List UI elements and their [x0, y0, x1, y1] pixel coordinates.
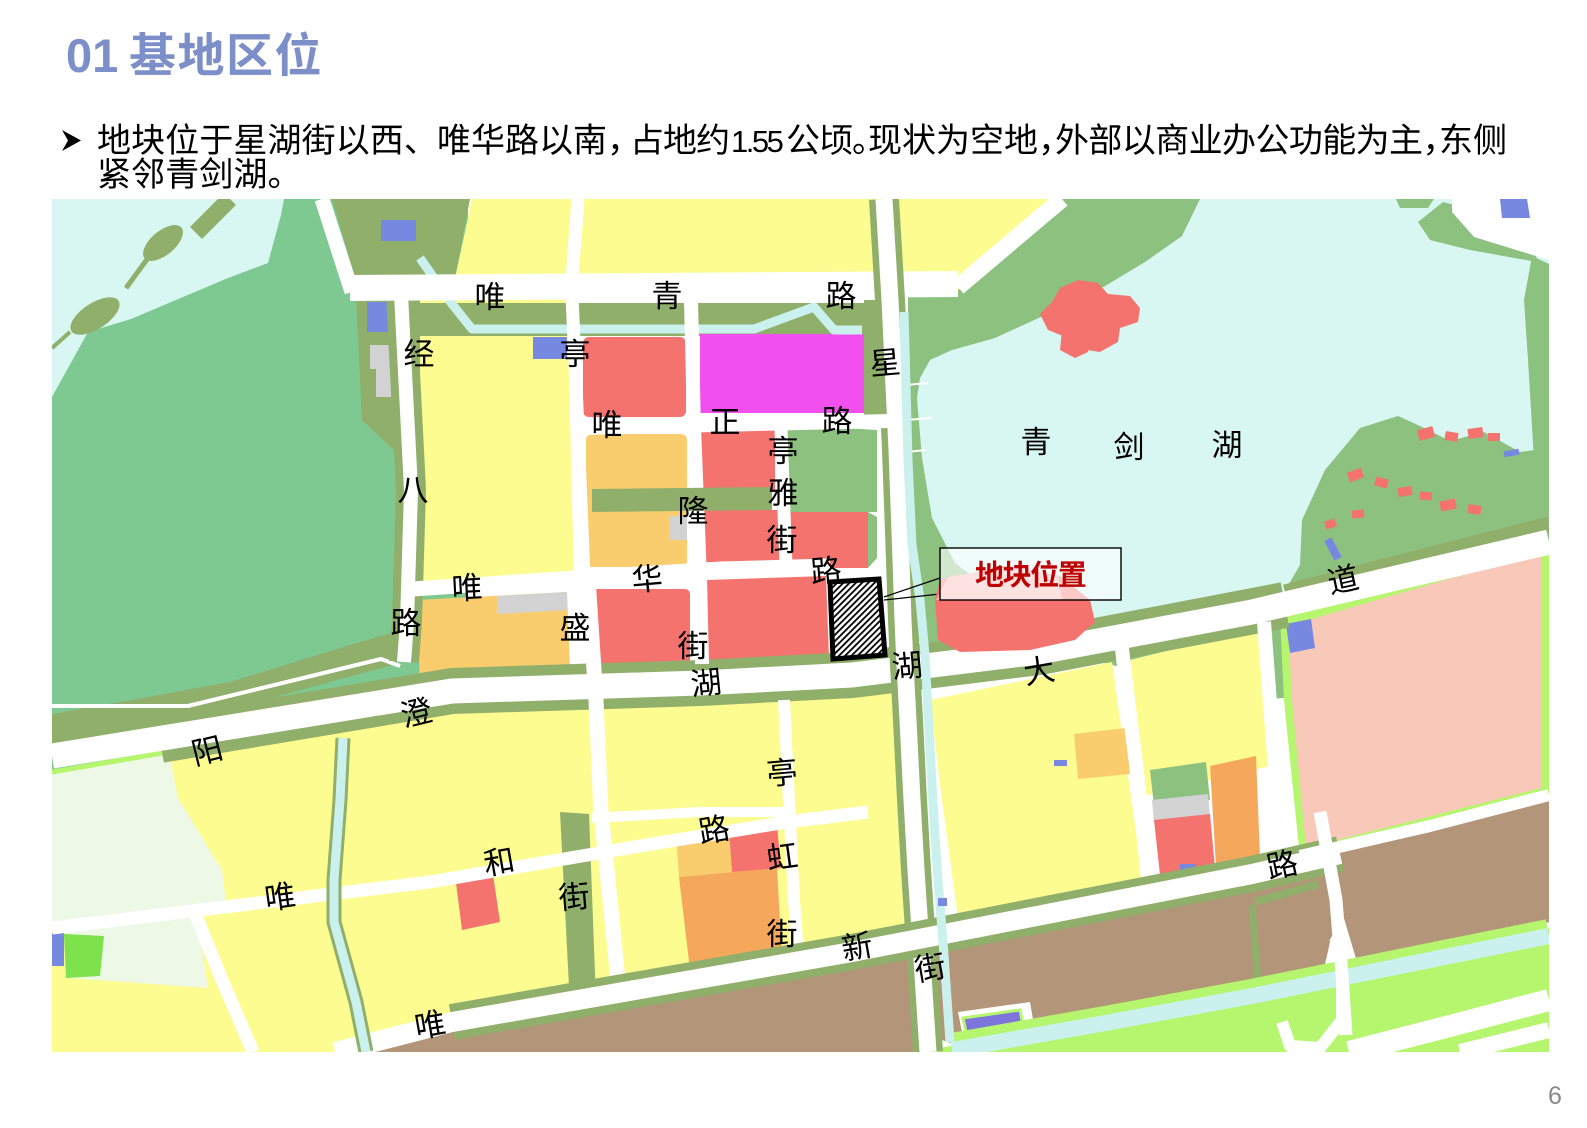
svg-text:6: 6	[1548, 1082, 1562, 1110]
svg-text:1.55: 1.55	[731, 124, 783, 159]
svg-text:01: 01	[66, 29, 118, 82]
